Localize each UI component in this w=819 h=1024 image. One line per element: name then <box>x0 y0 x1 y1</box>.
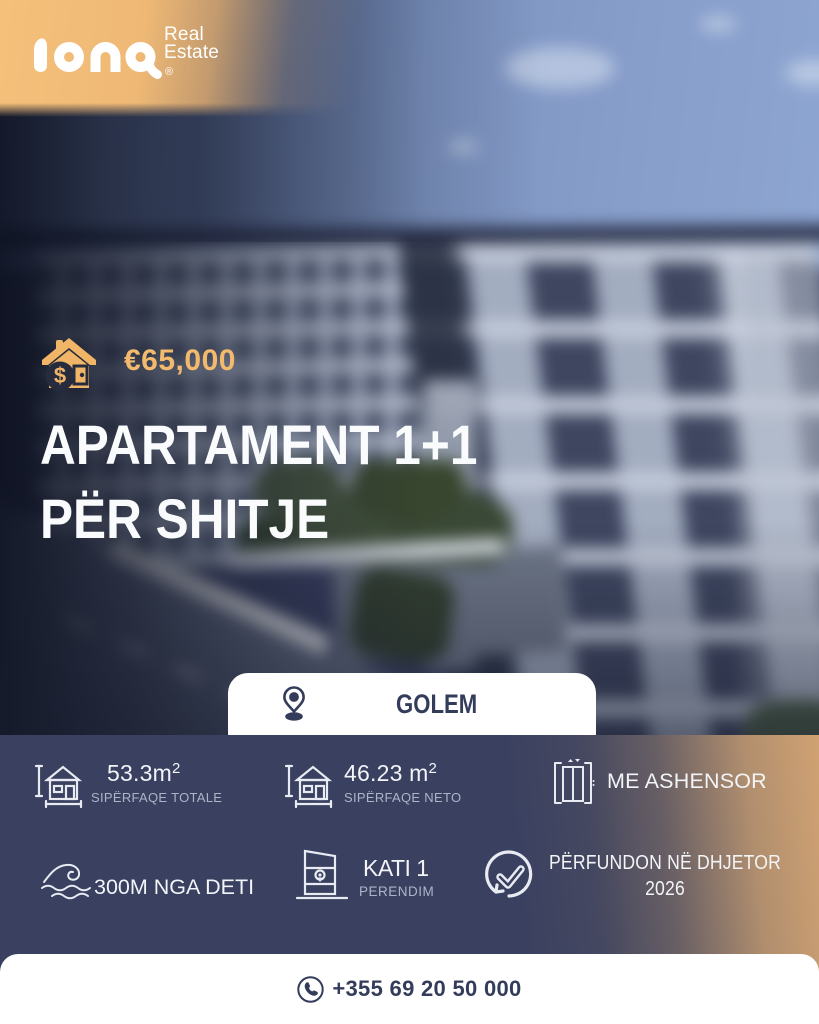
svg-text:$: $ <box>54 363 66 388</box>
